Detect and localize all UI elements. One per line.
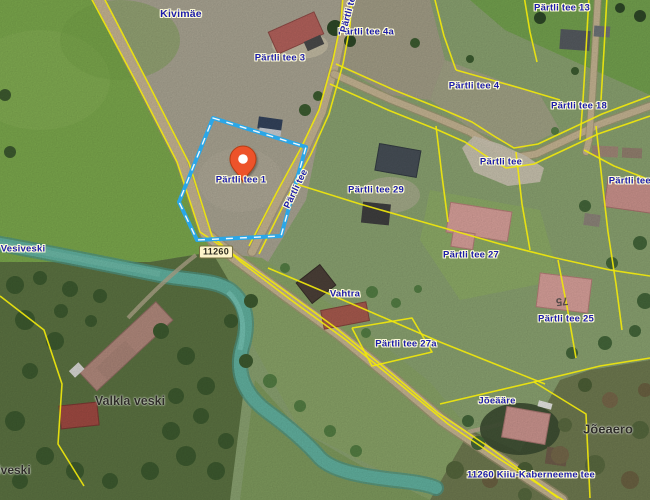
map-label-partli-tee-18: Pärtli tee 18 bbox=[551, 101, 607, 112]
map-label-partli-tee-1: Pärtli tee 1 bbox=[216, 175, 266, 186]
map-label-partli-tee-29: Pärtli tee 29 bbox=[348, 185, 404, 196]
map-label-vahtra: Vahtra bbox=[330, 289, 360, 300]
aerial-imagery bbox=[0, 0, 650, 500]
map-label-partli-tee-2: Pärtli tee 2 bbox=[609, 176, 650, 187]
map-label-valkla-veski: Valkla veski bbox=[95, 394, 165, 408]
map-label-vesiveski: Vesiveski bbox=[1, 244, 46, 255]
map-label-partli-tee-27: Pärtli tee 27 bbox=[443, 250, 499, 261]
map-viewport[interactable]: Kivimäe Pärtli tee 3 Pärtli tee 4a Pärtl… bbox=[0, 0, 650, 500]
map-label-kiiu-kaberneeme-tee: 11260 Kiiu-Kaberneeme tee bbox=[467, 470, 595, 481]
map-label-partli-tee-27a: Pärtli tee 27a bbox=[375, 339, 436, 350]
map-label-kivimae: Kivimäe bbox=[160, 8, 202, 20]
map-label-partli-tee-4: Pärtli tee 4 bbox=[449, 81, 499, 92]
roof-number-marking: 75 bbox=[555, 294, 568, 307]
map-label-partli-tee-25: Pärtli tee 25 bbox=[538, 314, 594, 325]
map-label-partli-tee-road-east: Pärtli tee bbox=[480, 157, 522, 168]
map-label-iveski-clipped: iveski bbox=[0, 463, 31, 477]
map-label-partli-tee-3: Pärtli tee 3 bbox=[255, 53, 305, 64]
photo-grain bbox=[0, 0, 650, 500]
map-label-joeaare: Jõeääre bbox=[478, 396, 515, 407]
road-number-badge: 11260 bbox=[199, 246, 233, 259]
map-label-partli-tee-13: Pärtli tee 13 bbox=[534, 3, 590, 14]
map-label-joeaero: Jõeaero bbox=[583, 422, 633, 437]
